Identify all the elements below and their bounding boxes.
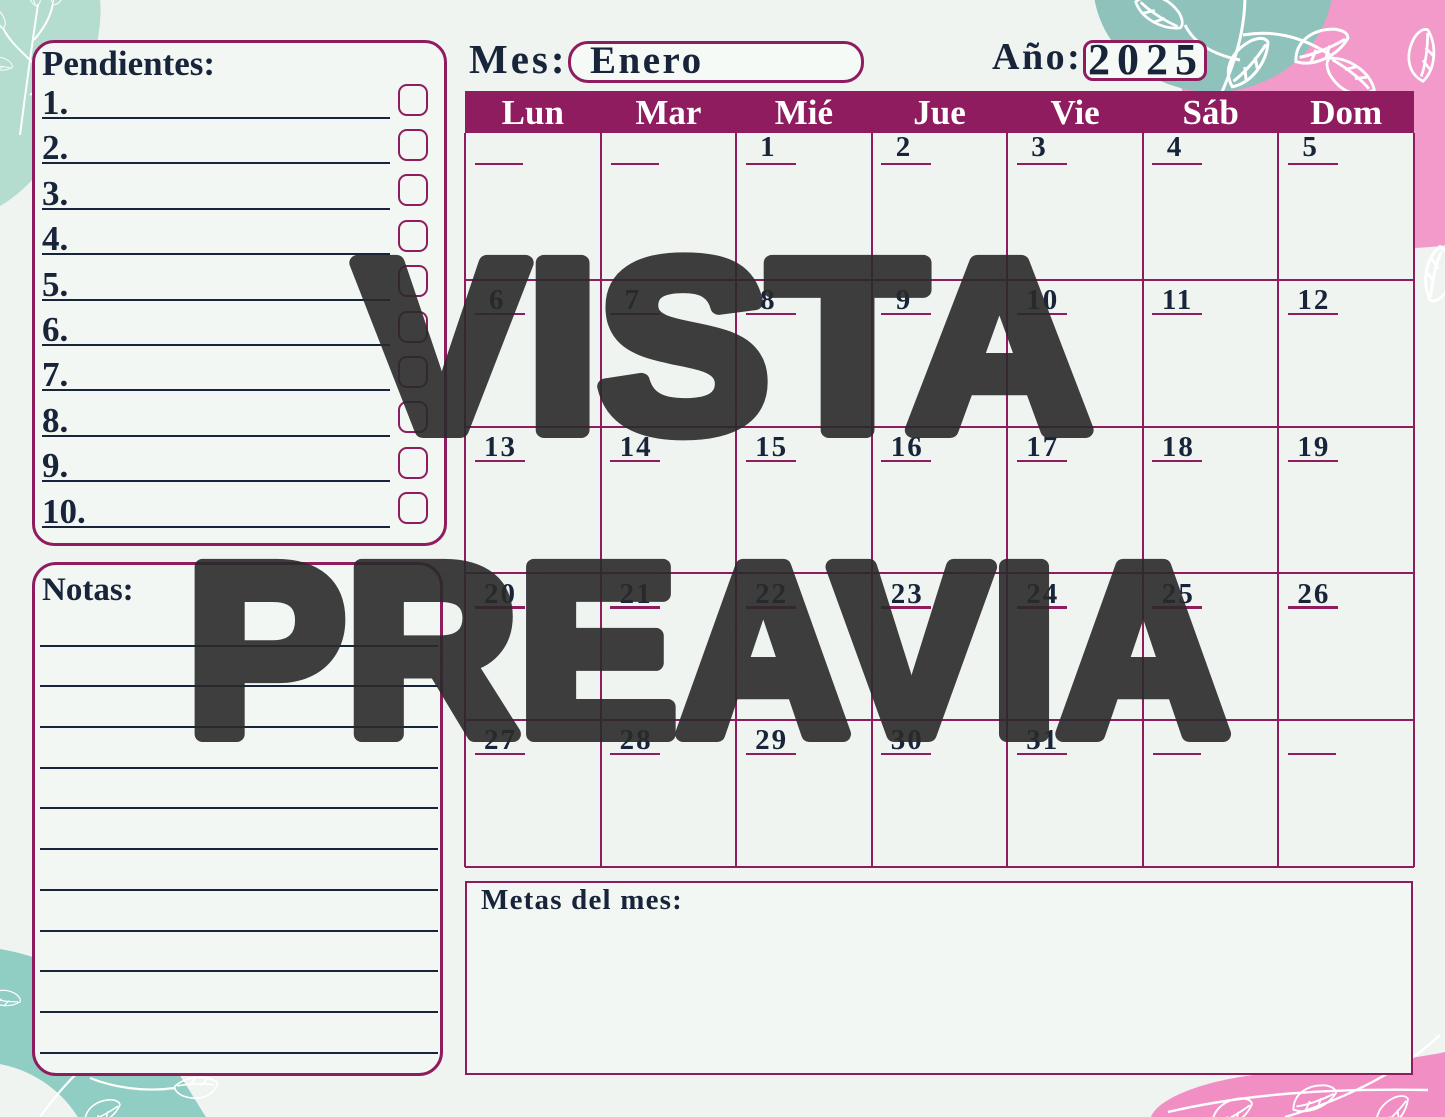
svg-text:PREAVIA: PREAVIA [187, 515, 1230, 786]
svg-text:VISTA: VISTA [356, 211, 1092, 482]
